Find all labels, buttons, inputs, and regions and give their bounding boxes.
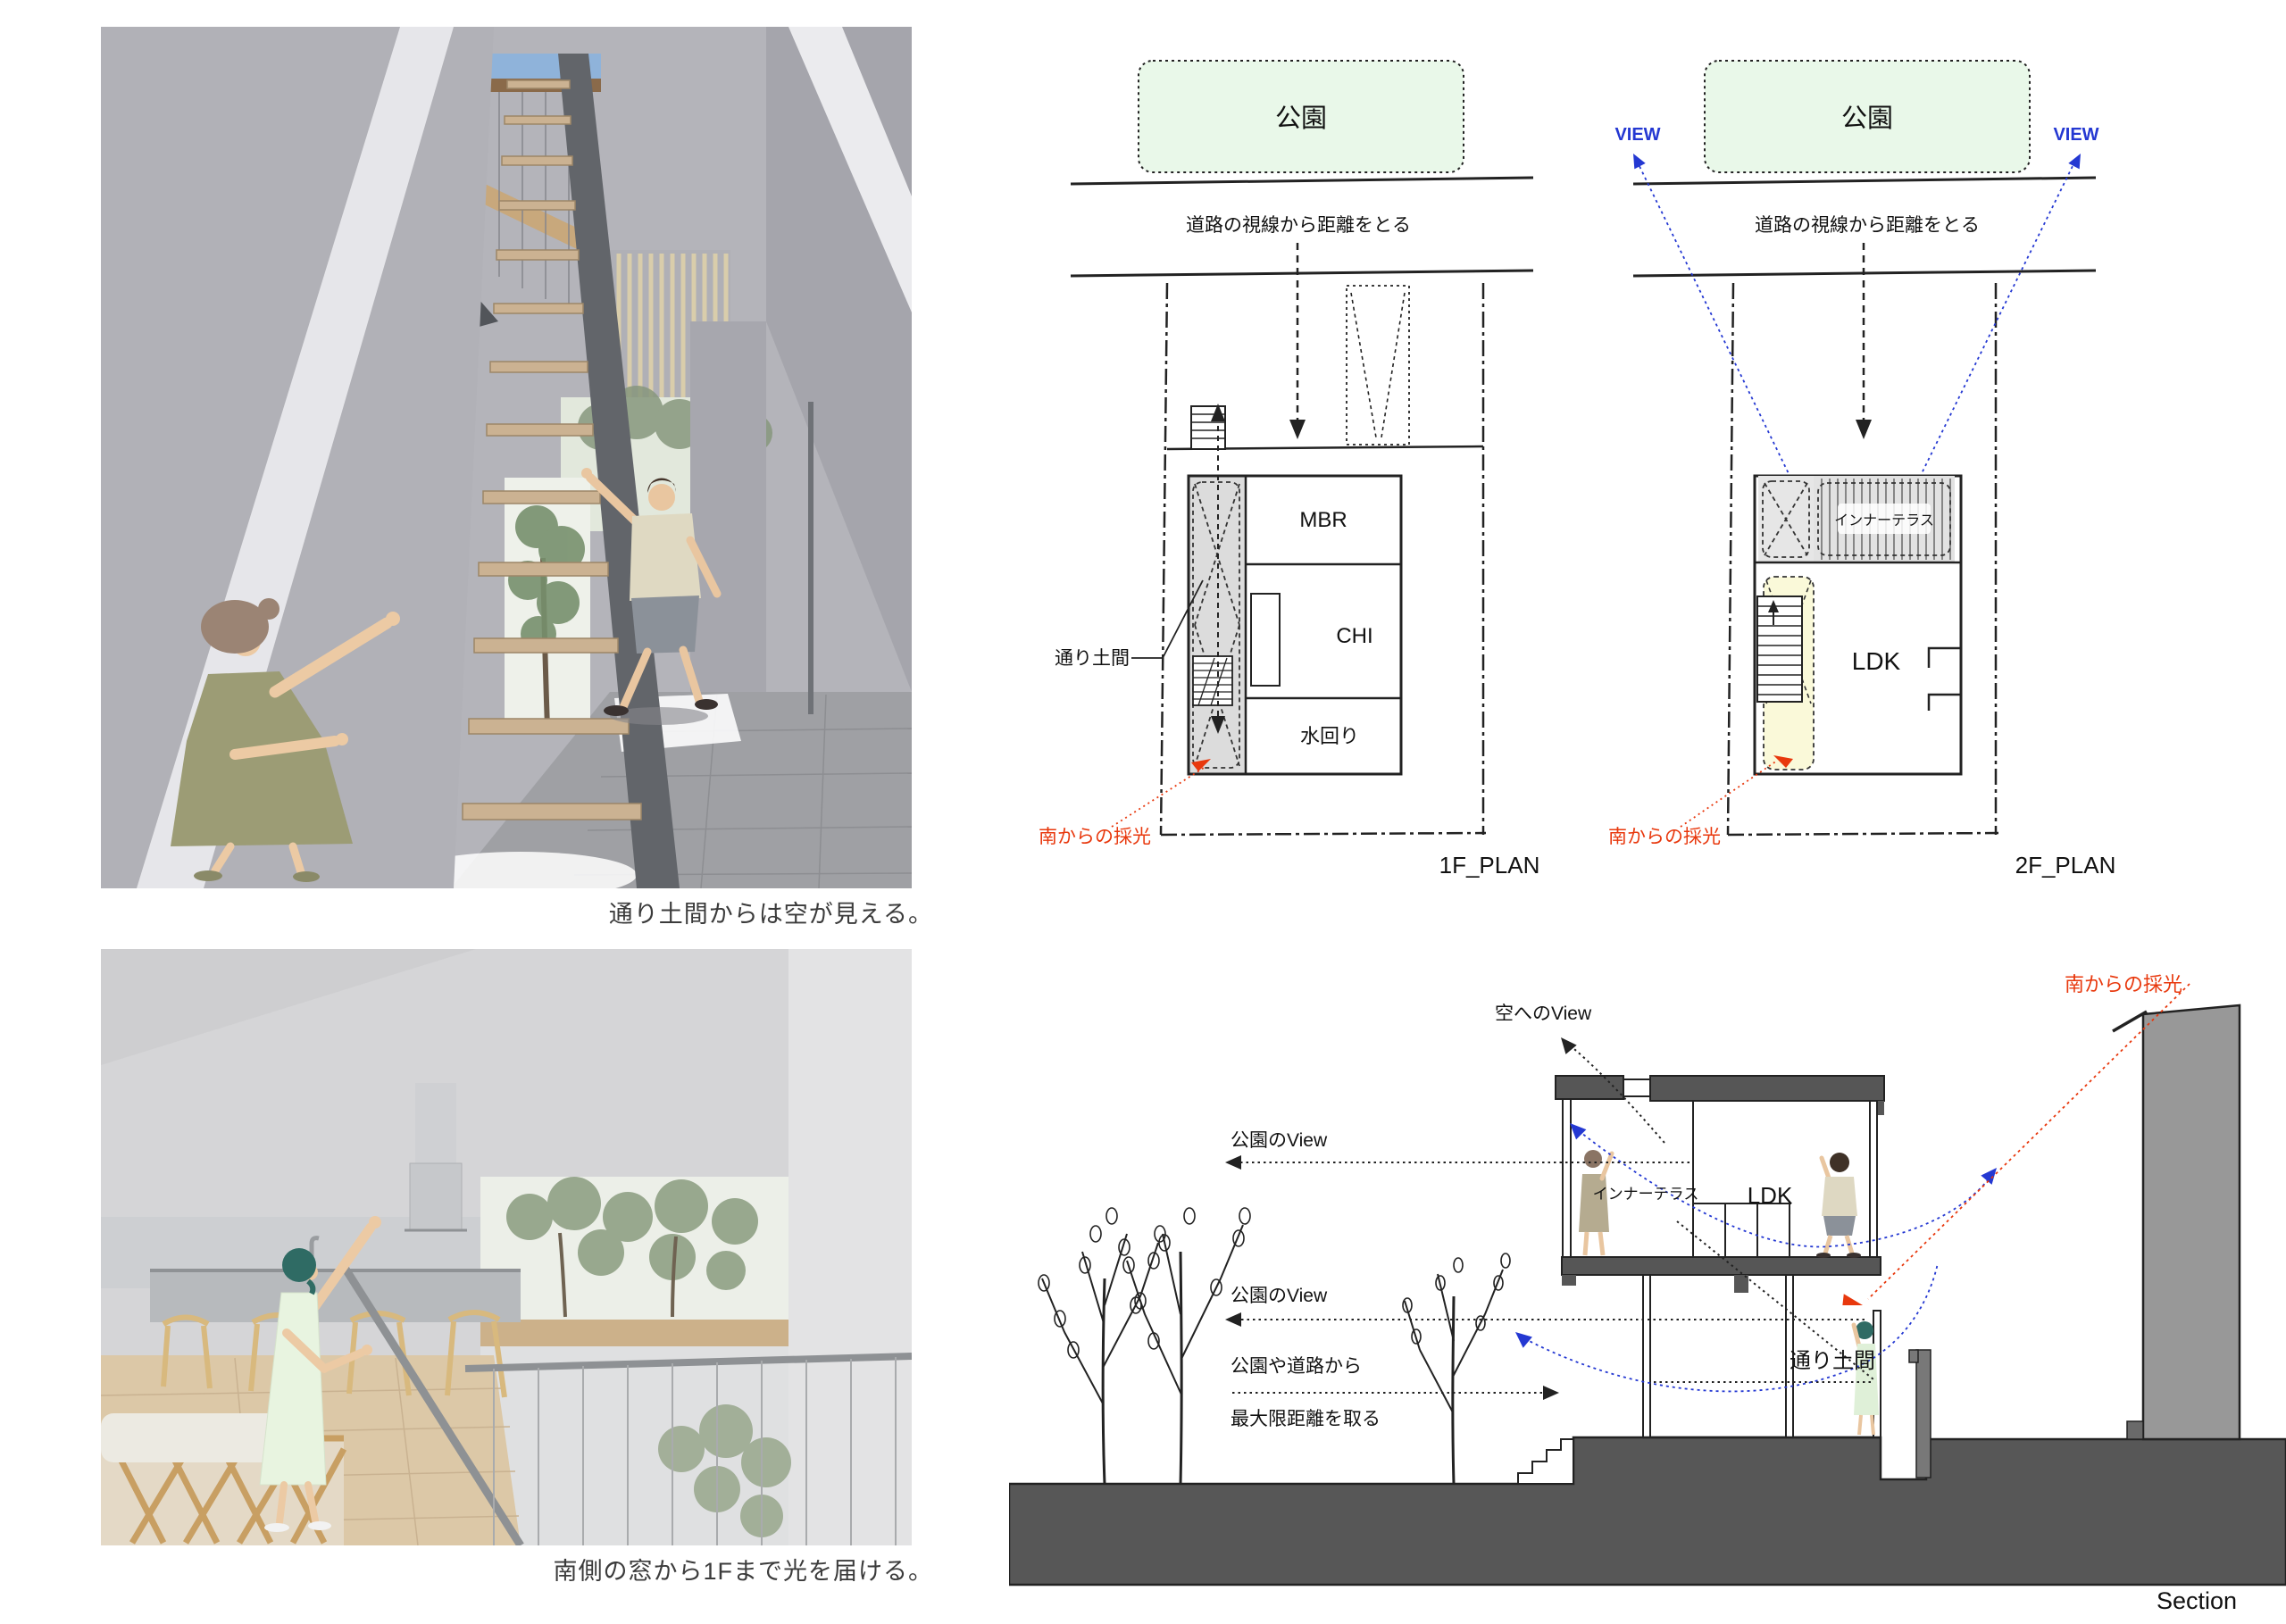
neighbor-building: [2113, 1005, 2240, 1439]
caption-bottom-render: 南側の窓から1Fまで光を届ける。: [357, 1552, 933, 1587]
blue-arrow-right: [1981, 1163, 2002, 1185]
road-note-1f: 道路の視線から距離をとる: [1186, 215, 1411, 236]
distance-note-2: 最大限距離を取る: [1231, 1409, 1381, 1429]
mid-wall-strip: [690, 321, 766, 714]
neighbor-roof-edge: [2113, 1012, 2147, 1031]
section-ldk-label: LDK: [1748, 1182, 1793, 1209]
building-1f: MBR CHI 水回り: [1189, 404, 1401, 774]
park-label-2f: 公園: [1841, 104, 1893, 133]
road-line-upper-2f: [1633, 178, 2096, 184]
roof-slab: [1650, 1076, 1884, 1101]
annotation-lines: [1225, 984, 2190, 1400]
stair-2f: [1757, 596, 1802, 702]
room-chi: CHI: [1336, 624, 1372, 648]
building-2f: インナーテラス: [1755, 476, 1961, 774]
plan-title-2f: 2F_PLAN: [2015, 852, 2116, 879]
render-top-svg: [101, 27, 912, 888]
ground: [1009, 1437, 2286, 1585]
render-bottom-svg: [101, 949, 912, 1545]
distance-note-1: 公園や道路から: [1231, 1356, 1362, 1377]
boundary-wall: [1909, 1350, 1931, 1478]
neighbor-base-step: [2127, 1421, 2143, 1439]
presentation-board: { "page": {"width": 2560, "height": 1814…: [0, 0, 2286, 1620]
section-svg: 空へのView 公園のView 公園のView 公園や道路から 最大限距離を取る…: [1009, 969, 2286, 1620]
interior-stair-1f: [1193, 656, 1232, 705]
distance-arrow-head-1f: [1289, 420, 1306, 439]
south-light-arrow-section: [1838, 1290, 1863, 1315]
roof-eave-left: [1556, 1076, 1623, 1099]
road-note-2f: 道路の視線から距離をとる: [1755, 215, 1980, 236]
section-man-ldk: [1816, 1153, 1861, 1258]
wall-2f-right: [1870, 1101, 1877, 1257]
view-label-left: VIEW: [1614, 125, 1660, 145]
plan-2f: 公園 道路の視線から距離をとる VIEW VIEW: [1608, 61, 2115, 879]
section-drawing: 空へのView 公園のView 公園のView 公園や道路から 最大限距離を取る…: [1009, 969, 2286, 1620]
tree-3: [1403, 1253, 1510, 1484]
slab-lip-left: [1562, 1275, 1576, 1286]
slab-2f: [1562, 1257, 1881, 1275]
floor-plans: 公園 道路の視線から距離をとる: [982, 31, 2215, 884]
terrace-front-wall: [1563, 1099, 1571, 1257]
plan-1f: 公園 道路の視線から距離をとる: [1039, 61, 1539, 879]
section-terrace-label: インナーテラス: [1593, 1186, 1699, 1203]
range-hood: [410, 1163, 462, 1230]
blue-arrow-lower: [1511, 1327, 1532, 1348]
south-light-label-1f: 南からの採光: [1039, 827, 1151, 847]
distance-arrow: [1543, 1386, 1559, 1400]
render-top-stair-view: [101, 27, 912, 888]
view-arrow-right: [2068, 151, 2086, 170]
park-label-1f: 公園: [1275, 104, 1327, 133]
render-bottom-ldk-view: [101, 949, 912, 1545]
south-light-label-2f: 南からの採光: [1608, 827, 1721, 847]
section-title: Section: [2157, 1587, 2237, 1614]
house-section: [1556, 1076, 1884, 1437]
south-light-leader-1f: [1112, 768, 1204, 827]
park-view-upper-arrow: [1225, 1155, 1241, 1170]
tree-2: [1123, 1208, 1250, 1484]
room-mbr: MBR: [1299, 508, 1347, 532]
site-steps: [1518, 1439, 1573, 1484]
ldk-low-window: [1693, 1203, 1791, 1257]
tree-1: [1039, 1208, 1165, 1484]
section-doma-label: 通り土間: [1790, 1349, 1875, 1373]
park-view-lower-arrow: [1225, 1312, 1241, 1327]
south-light-line: [1868, 984, 2190, 1299]
park-view-lower-label: 公園のView: [1231, 1286, 1328, 1306]
sky-view-label: 空へのView: [1495, 1004, 1592, 1024]
caption-top-render: 通り土間からは空が見える。: [357, 895, 933, 929]
distance-arrow-head-2f: [1856, 420, 1872, 439]
doma-label-1f: 通り土間: [1055, 648, 1130, 669]
section-south-light-label: 南からの採光: [2065, 973, 2182, 995]
section-woman-terrace: [1579, 1150, 1612, 1255]
plans-svg: 公園 道路の視線から距離をとる: [982, 31, 2215, 884]
inner-terrace-label-2f: インナーテラス: [1834, 513, 1934, 529]
room-wet-area: 水回り: [1300, 725, 1359, 747]
room-ldk-2f: LDK: [1852, 647, 1901, 675]
window-ledge: [480, 1320, 788, 1346]
plan-title-1f: 1F_PLAN: [1439, 852, 1540, 879]
closet-1f: [1251, 594, 1280, 686]
sky-view-arrow: [1556, 1033, 1577, 1054]
tree-symbol-1f: [1347, 286, 1409, 445]
wall-1f-left: [1643, 1275, 1650, 1437]
park-view-upper-label: 公園のView: [1231, 1130, 1328, 1151]
view-label-right: VIEW: [2053, 125, 2098, 145]
roof-skylight: [1623, 1079, 1652, 1096]
hood-duct: [415, 1083, 456, 1168]
road-line-upper-1f: [1071, 178, 1533, 184]
view-arrow-left: [1628, 151, 1646, 170]
road-line-lower-1f: [1071, 271, 1533, 276]
